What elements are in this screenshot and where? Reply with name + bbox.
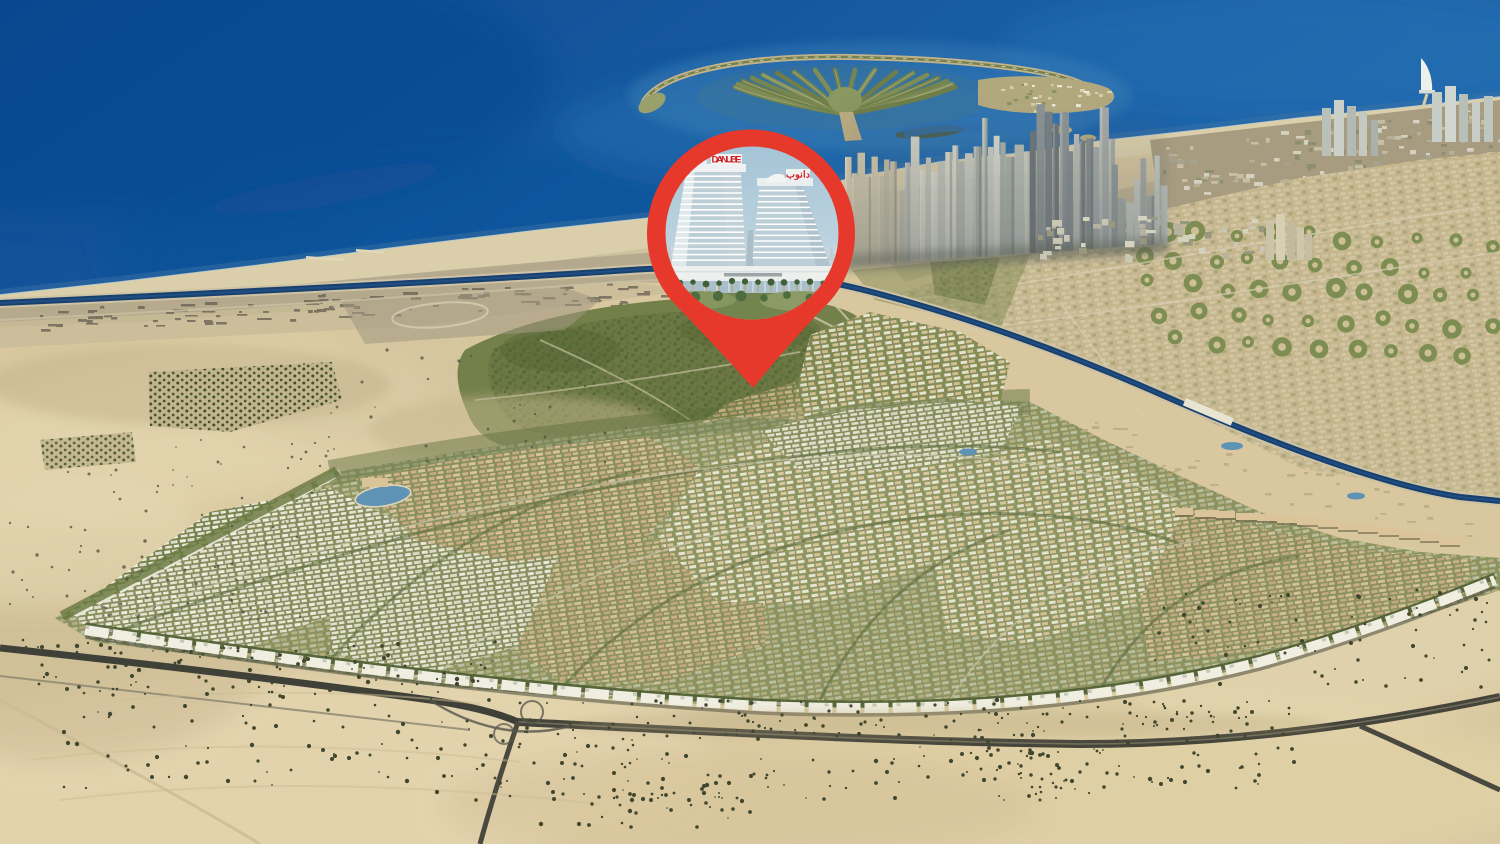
- svg-text:DANUBE: DANUBE: [712, 155, 742, 166]
- svg-text:دانوب: دانوب: [786, 170, 811, 181]
